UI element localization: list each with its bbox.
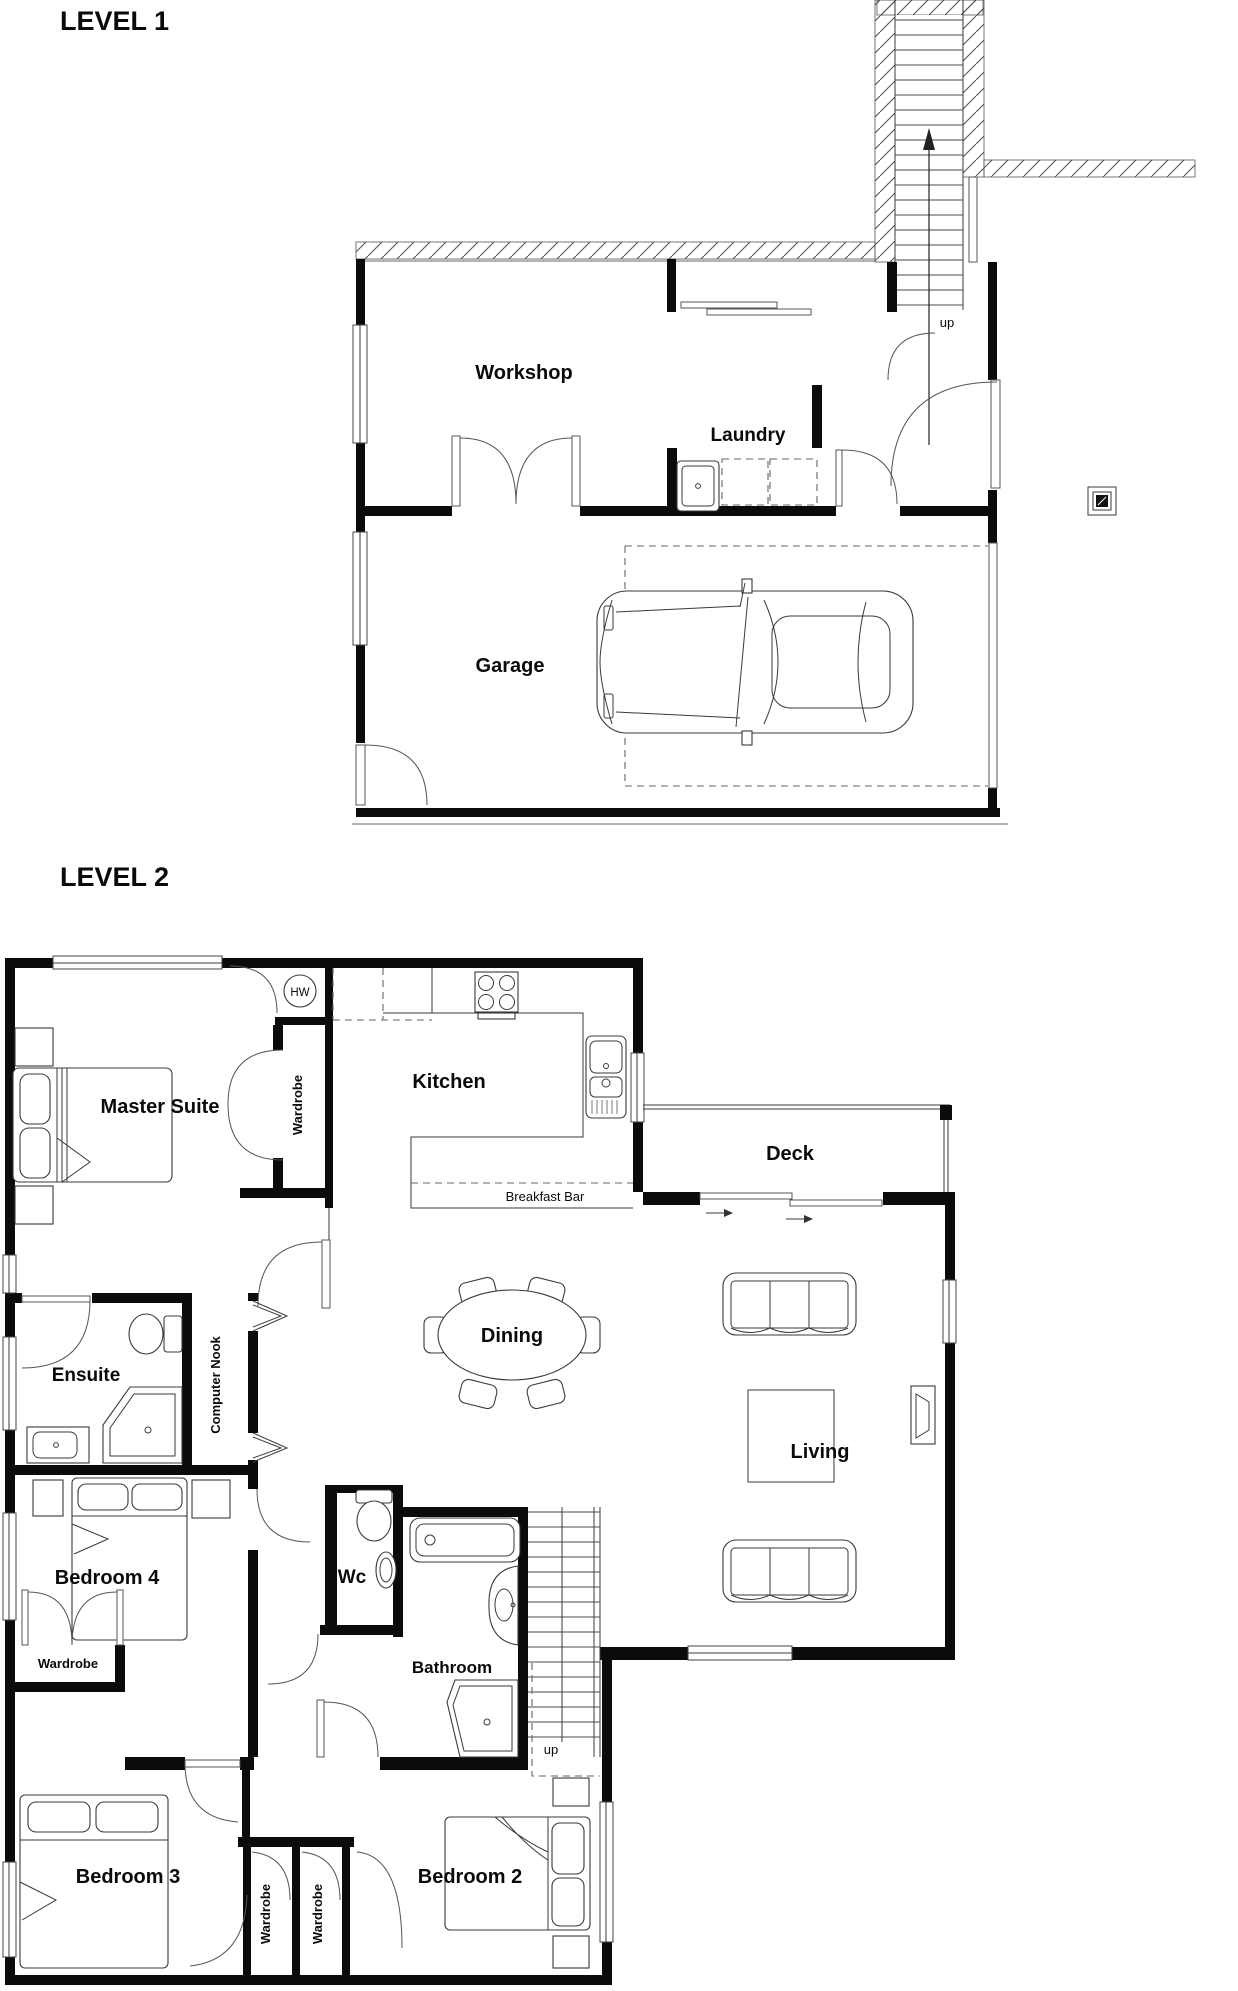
master-wardrobe: Wardrobe bbox=[228, 1050, 305, 1160]
bedroom3: Bedroom 3 bbox=[20, 1760, 247, 1968]
sofa-icon bbox=[723, 1540, 856, 1602]
room-label-deck: Deck bbox=[766, 1143, 815, 1165]
tv-unit-icon bbox=[911, 1386, 935, 1444]
label-wardrobe-left: Wardrobe bbox=[258, 1884, 273, 1944]
room-label-laundry: Laundry bbox=[711, 425, 786, 446]
laundry-tub bbox=[677, 461, 719, 511]
hw-label: HW bbox=[290, 987, 309, 999]
entry-door bbox=[891, 380, 1000, 488]
room-label-bathroom: Bathroom bbox=[412, 1658, 492, 1677]
room-label-garage: Garage bbox=[476, 655, 545, 677]
bedroom4: Bedroom 4 Wardrobe bbox=[22, 1478, 310, 1671]
master-entry-door bbox=[258, 1240, 330, 1308]
level1-exterior-walls bbox=[352, 259, 1008, 824]
dining-table: Dining bbox=[424, 1276, 600, 1410]
computer-nook: Computer Nook bbox=[208, 1301, 287, 1462]
room-label-wc: Wc bbox=[338, 1567, 367, 1588]
stairs-up-label-l1: up bbox=[940, 315, 954, 330]
level1-title: LEVEL 1 bbox=[60, 6, 169, 36]
bedroom2: Bedroom 2 bbox=[357, 1778, 590, 1968]
kitchen-sink-icon bbox=[586, 1036, 626, 1118]
bed-icon bbox=[33, 1478, 230, 1640]
garage-side-door bbox=[356, 745, 427, 805]
room-label-master-suite: Master Suite bbox=[101, 1096, 220, 1118]
meter-box-icon bbox=[1088, 487, 1116, 515]
wc-basin-icon bbox=[376, 1552, 396, 1588]
room-label-living: Living bbox=[791, 1441, 850, 1463]
wall-thin-right bbox=[969, 177, 977, 262]
room-label-workshop: Workshop bbox=[475, 362, 572, 384]
bathroom: Bathroom bbox=[317, 1518, 520, 1757]
hall-garage-door bbox=[842, 450, 897, 504]
room-label-kitchen: Kitchen bbox=[412, 1071, 485, 1093]
toilet-icon bbox=[129, 1314, 182, 1354]
ensuite: Ensuite bbox=[22, 1296, 182, 1463]
deck: Deck bbox=[643, 1105, 952, 1192]
living: Living bbox=[723, 1273, 935, 1602]
room-label-dining: Dining bbox=[481, 1325, 543, 1347]
label-breakfast-bar: Breakfast Bar bbox=[506, 1189, 585, 1204]
sliding-doors bbox=[681, 302, 811, 315]
shower-icon bbox=[103, 1387, 182, 1463]
deck-band-right bbox=[984, 160, 1195, 177]
hall-stairs-door bbox=[888, 333, 935, 380]
level1-plan: LEVEL 1 up bbox=[60, 0, 1195, 824]
car bbox=[597, 579, 913, 745]
room-label-bedroom3: Bedroom 3 bbox=[76, 1866, 180, 1888]
stairs-l1: up bbox=[875, 0, 984, 445]
room-label-bedroom2: Bedroom 2 bbox=[418, 1866, 522, 1888]
hot-water-cylinder: HW bbox=[230, 966, 316, 1013]
floorplan-page: LEVEL 1 up bbox=[0, 0, 1238, 1991]
room-label-computer-nook: Computer Nook bbox=[208, 1335, 223, 1433]
stairs-up-label-l2: up bbox=[544, 1742, 558, 1757]
label-wardrobe-bed4: Wardrobe bbox=[38, 1656, 98, 1671]
room-label-ensuite: Ensuite bbox=[52, 1365, 121, 1386]
label-wardrobe-right: Wardrobe bbox=[310, 1884, 325, 1944]
level2-title: LEVEL 2 bbox=[60, 862, 169, 892]
deck-sliding-door bbox=[700, 1193, 882, 1223]
washer-dryer bbox=[722, 459, 817, 505]
french-doors bbox=[452, 436, 580, 506]
corner-basin-icon bbox=[489, 1566, 518, 1645]
kitchen: Breakfast Bar Kitchen bbox=[333, 968, 633, 1208]
shower-icon bbox=[447, 1680, 518, 1757]
deck-band-top bbox=[356, 242, 875, 259]
sofa-icon bbox=[723, 1273, 856, 1335]
bed-master bbox=[13, 1028, 172, 1224]
hall-garage-door-leaf bbox=[836, 450, 842, 506]
vanity-icon bbox=[27, 1427, 89, 1463]
level2-plan: LEVEL 2 bbox=[3, 862, 956, 1985]
toilet-icon bbox=[356, 1490, 392, 1541]
bathtub-icon bbox=[410, 1518, 520, 1562]
label-wardrobe-master: Wardrobe bbox=[290, 1075, 305, 1135]
room-label-bedroom4: Bedroom 4 bbox=[55, 1567, 160, 1589]
stairs-l2: up bbox=[528, 1507, 600, 1776]
floorplan-svg: LEVEL 1 up bbox=[0, 0, 1238, 1991]
stove-icon bbox=[475, 972, 518, 1019]
